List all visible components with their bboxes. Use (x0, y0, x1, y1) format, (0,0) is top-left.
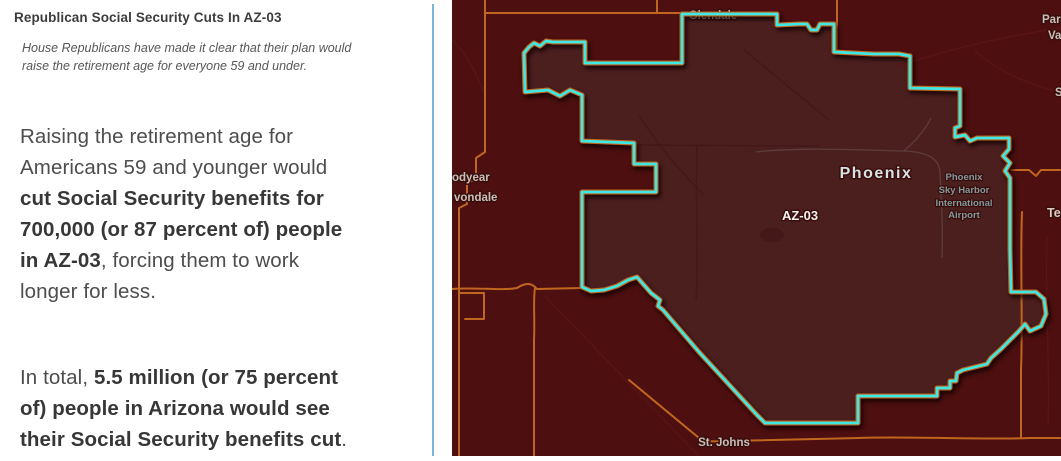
district-map[interactable]: Glendale odyearvondalePhoenixAZ-03Phoeni… (452, 0, 1061, 456)
label-paradise-partial1: Para (1042, 14, 1061, 26)
paragraph-district-impact: Raising the retirement age for Americans… (20, 121, 430, 307)
label-avondale-partial: vondale (454, 192, 497, 204)
label-tempe-partial: Te (1047, 206, 1061, 220)
label-airport-line2: Sky Harbor (939, 185, 990, 196)
label-goodyear-partial: odyear (452, 172, 490, 184)
pane-divider[interactable] (432, 4, 434, 456)
label-s-partial: S (1055, 87, 1061, 99)
label-airport-line1: Phoenix (946, 172, 984, 183)
label-st-johns: St. Johns (698, 437, 750, 449)
paragraph-state-impact: In total, 5.5 million (or 75 percent of)… (20, 362, 430, 455)
label-paradise-partial2: Va (1048, 30, 1061, 42)
screenshot-root: { "panel": { "title": "Republican Social… (0, 0, 1061, 456)
label-airport-line4: Airport (948, 210, 981, 221)
panel-title: Republican Social Security Cuts In AZ-03 (14, 10, 414, 25)
info-panel: Republican Social Security Cuts In AZ-03… (0, 0, 432, 456)
map-pane[interactable]: Glendale odyearvondalePhoenixAZ-03Phoeni… (452, 0, 1061, 456)
label-district-az03: AZ-03 (782, 208, 818, 223)
mountain-park (760, 228, 784, 242)
label-phoenix: Phoenix (840, 165, 913, 182)
panel-subtitle: House Republicans have made it clear tha… (22, 39, 422, 75)
label-airport-line3: International (935, 198, 992, 209)
